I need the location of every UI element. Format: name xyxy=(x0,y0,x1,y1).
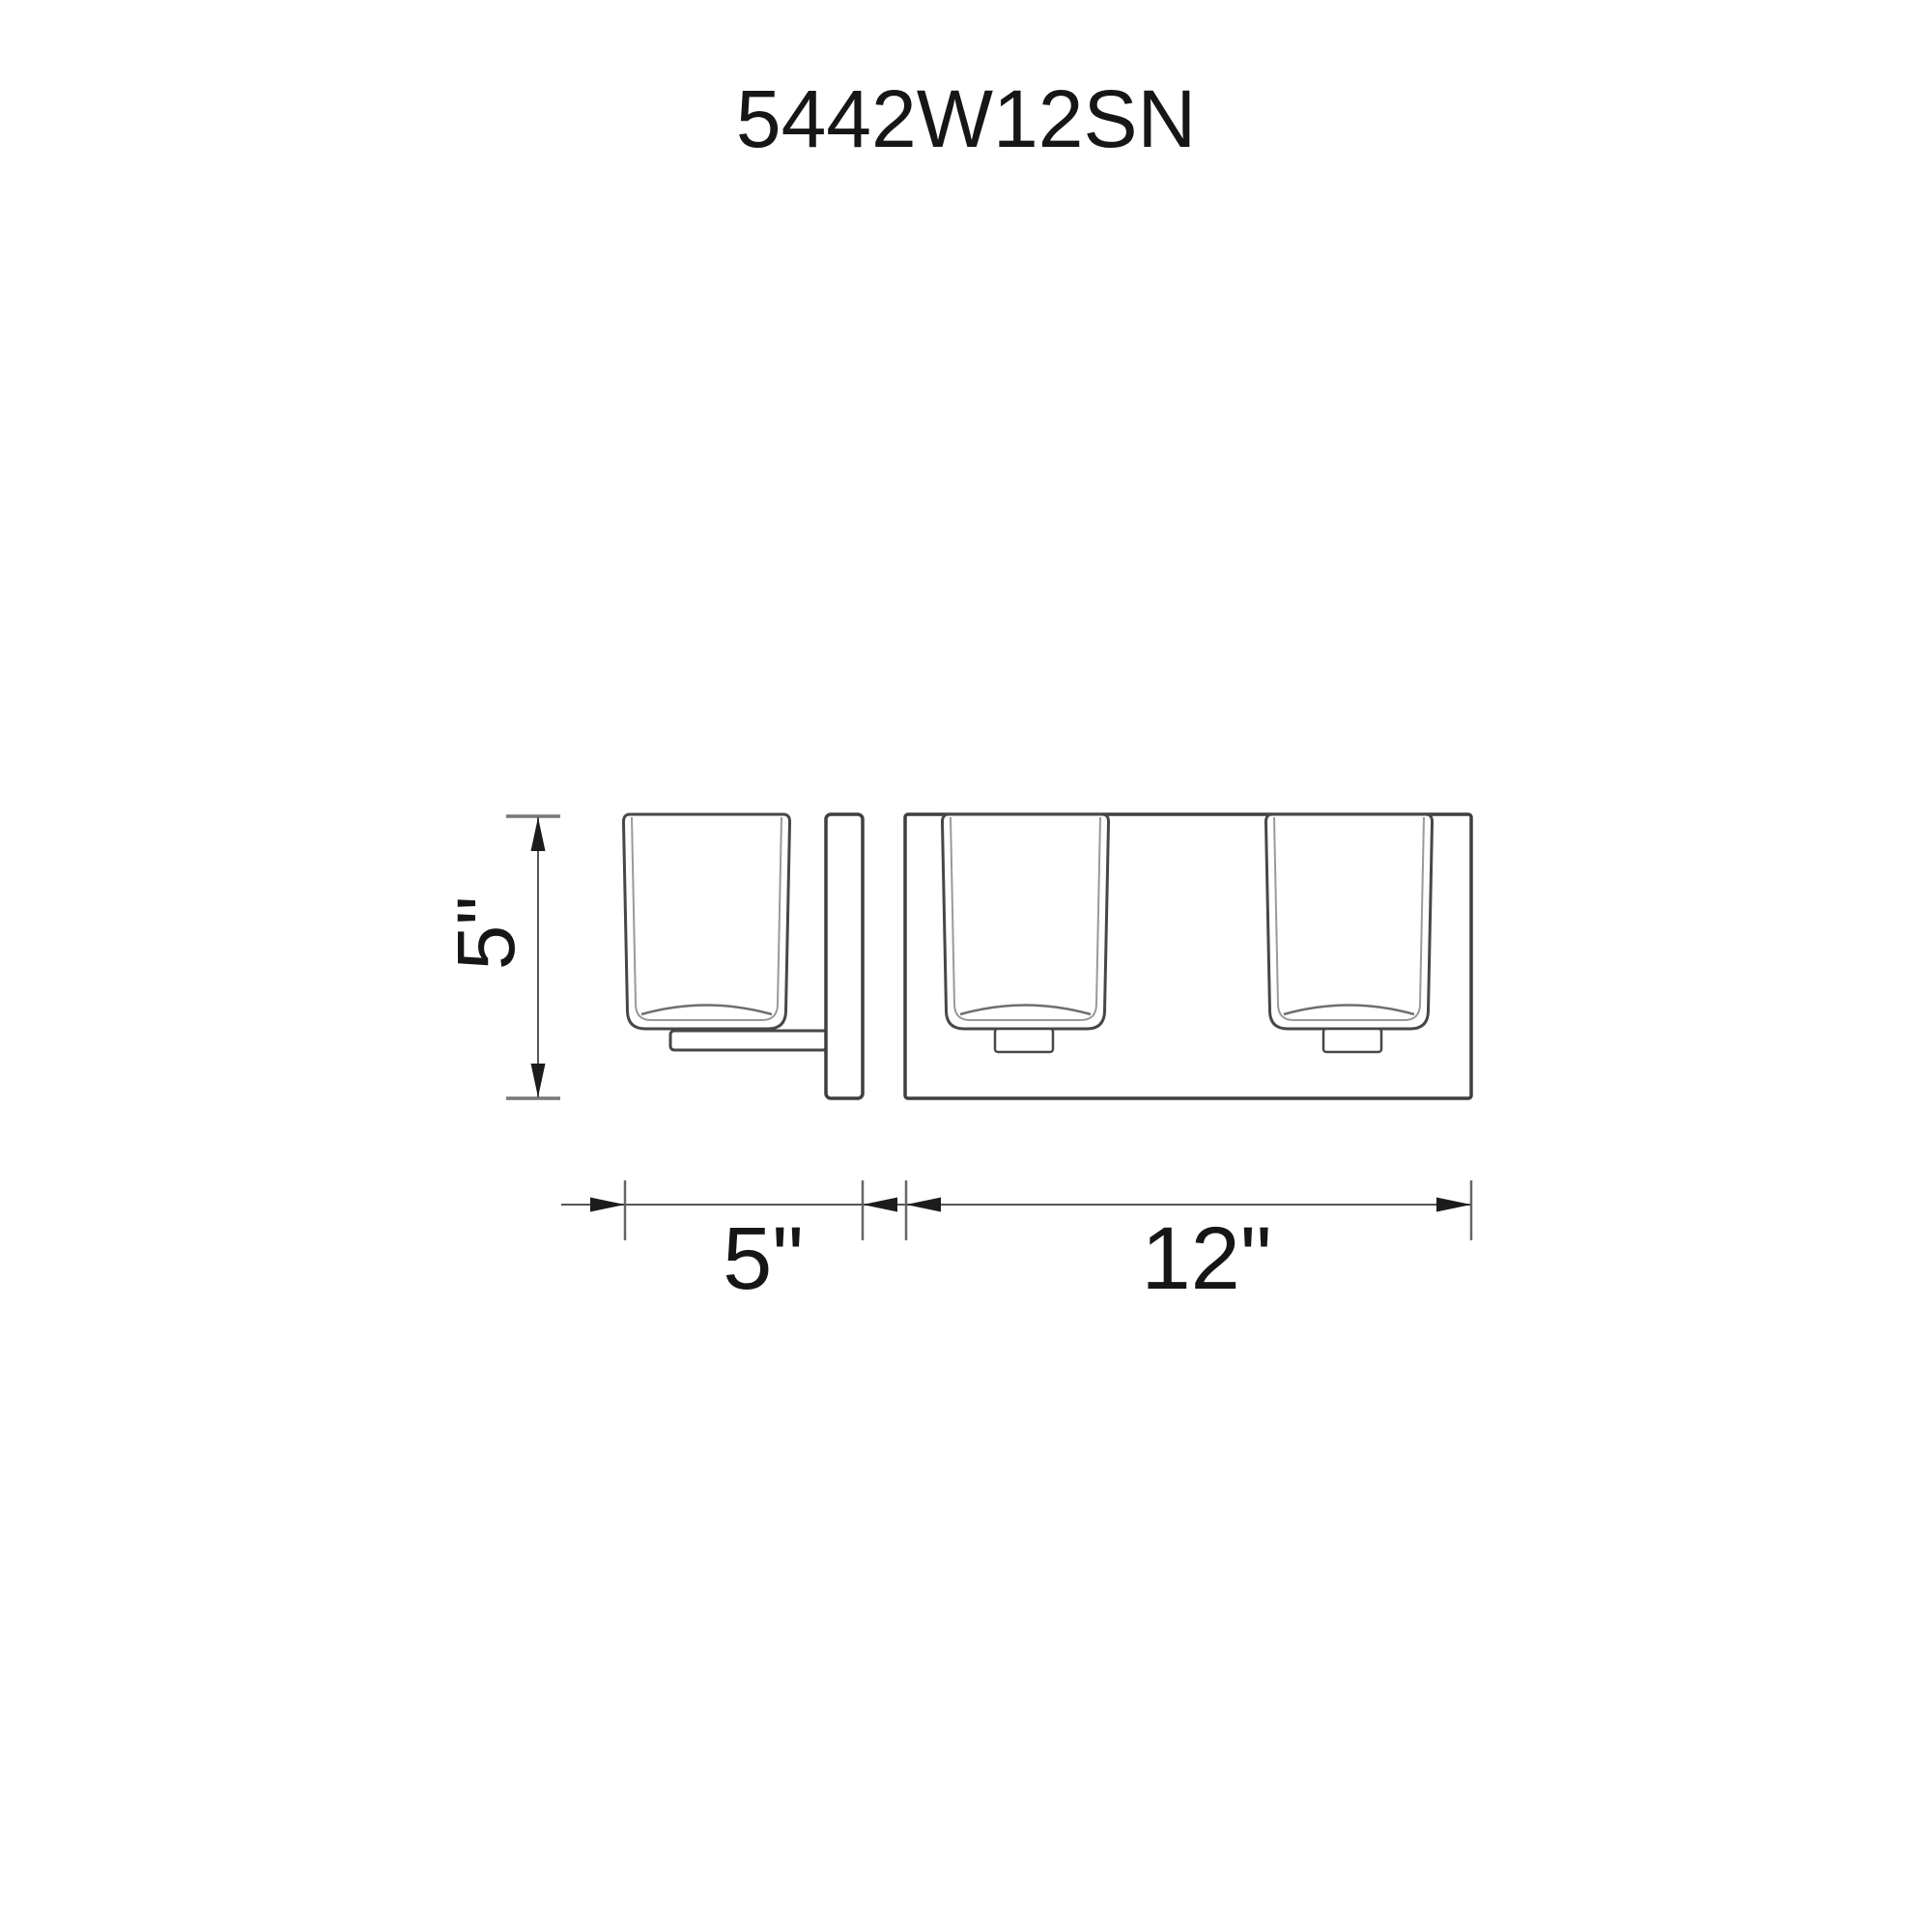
depth-dimension-label: 5" xyxy=(723,1209,804,1308)
width-dimension-label: 12" xyxy=(1142,1209,1272,1308)
height-dim-arrow-up xyxy=(531,817,546,851)
product-code-title: 5442W12SN xyxy=(736,73,1196,164)
front-view xyxy=(905,814,1471,1098)
front-glass-shade-left xyxy=(942,814,1108,1029)
side-glass-shade xyxy=(623,814,789,1029)
front-socket-left xyxy=(995,1029,1053,1052)
drawing-canvas: 5442W12SN xyxy=(0,0,1932,1932)
front-glass-right-outline xyxy=(1265,814,1432,1029)
height-dim-arrow-down xyxy=(531,1064,546,1097)
depth-dim-arrow-left xyxy=(590,1198,625,1212)
width-dimensions: 5" 12" xyxy=(561,1180,1471,1308)
side-mounting-arm xyxy=(670,1031,827,1050)
height-dimension-label: 5" xyxy=(440,896,531,971)
front-socket-right xyxy=(1323,1029,1381,1052)
height-dimension: 5" xyxy=(440,816,560,1098)
front-glass-shade-right xyxy=(1265,814,1432,1029)
side-view xyxy=(623,814,863,1098)
depth-dim-arrow-right xyxy=(863,1198,897,1212)
technical-drawing-page: 5442W12SN xyxy=(0,0,1932,1932)
width-dim-arrow-left xyxy=(906,1198,941,1212)
width-dim-arrow-right xyxy=(1436,1198,1471,1212)
front-glass-left-outline xyxy=(942,814,1108,1029)
side-backplate xyxy=(826,814,863,1098)
